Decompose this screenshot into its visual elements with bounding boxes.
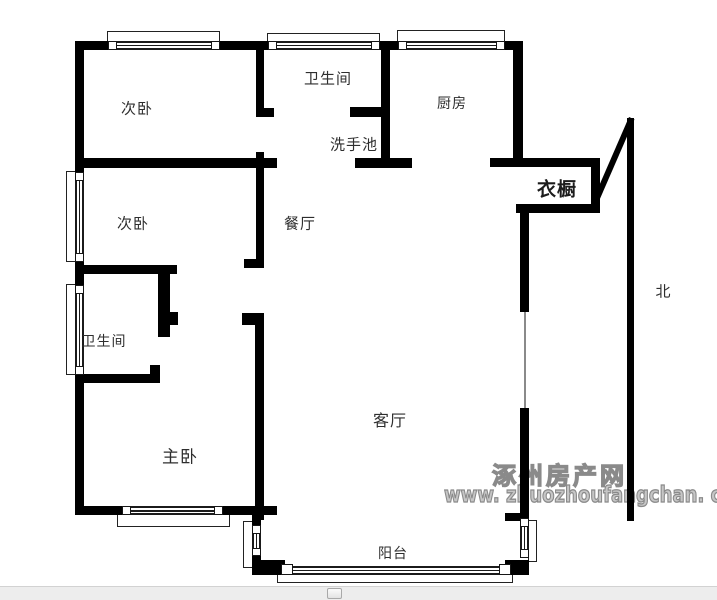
window-glass-line <box>79 181 81 253</box>
window-end-marker <box>108 41 117 50</box>
door-opening-line <box>524 312 526 408</box>
window-end-marker <box>520 518 529 527</box>
window-glass-line <box>277 48 371 50</box>
room-label-bathroom-2: 卫生间 <box>82 331 127 351</box>
window-glass-line <box>524 527 526 549</box>
bottom-scrollbar[interactable] <box>0 586 717 600</box>
room-label-bedroom-2: 次卧 <box>117 213 149 234</box>
window-frame <box>277 574 513 583</box>
window-end-marker <box>520 549 529 558</box>
wall <box>505 513 520 521</box>
window-glass-line <box>82 181 84 253</box>
window-end-marker <box>75 172 84 181</box>
window-glass-line <box>82 294 84 366</box>
window-frame <box>117 514 230 527</box>
window-glass-line <box>252 534 254 548</box>
window-glass-line <box>285 566 505 568</box>
room-label-bathroom-1: 卫生间 <box>304 68 352 89</box>
window-end-marker <box>496 41 505 50</box>
wall <box>75 265 177 274</box>
window-glass-line <box>259 534 261 548</box>
window-glass-line <box>285 570 505 572</box>
window-end-marker <box>398 41 407 50</box>
wall <box>255 313 264 520</box>
wall <box>355 158 412 168</box>
room-label-master-bedroom: 主卧 <box>162 443 198 468</box>
wall <box>150 365 160 374</box>
window-glass-line <box>79 294 81 366</box>
window-glass-line <box>256 534 258 548</box>
room-label-wardrobe: 衣橱 <box>537 175 577 202</box>
window-end-marker <box>281 564 293 575</box>
window-glass-line <box>131 506 214 508</box>
watermark-site-url: www. zhuozhoufangchan. com <box>444 483 717 508</box>
window-end-marker <box>499 564 511 575</box>
window-end-marker <box>252 525 261 534</box>
wall <box>256 41 264 117</box>
window-glass-line <box>277 45 371 47</box>
wall <box>520 408 529 523</box>
room-label-kitchen: 厨房 <box>437 93 467 113</box>
window-end-marker <box>252 548 261 556</box>
window-glass-line <box>131 510 214 512</box>
wall <box>490 158 600 167</box>
window-end-marker <box>371 41 380 50</box>
wall <box>75 41 84 172</box>
wall <box>256 108 274 117</box>
wall <box>158 274 170 337</box>
window-glass-line <box>117 45 211 47</box>
wall <box>75 158 277 168</box>
wall <box>381 41 390 168</box>
window-glass-line <box>407 45 496 47</box>
window-frame <box>528 520 537 562</box>
window-end-marker <box>122 506 131 515</box>
wall <box>513 41 523 163</box>
scrollbar-handle[interactable] <box>327 588 342 599</box>
window-end-marker <box>268 41 277 50</box>
wall <box>75 506 122 515</box>
room-label-washbasin: 洗手池 <box>330 134 378 155</box>
window-end-marker <box>75 253 84 262</box>
wall <box>350 107 381 117</box>
north-label: 北 <box>655 281 670 302</box>
window-end-marker <box>214 506 223 515</box>
north-arrow-line <box>627 118 634 521</box>
room-label-bedroom-1: 次卧 <box>121 98 153 119</box>
wall <box>223 506 277 515</box>
window-glass-line <box>407 41 496 43</box>
window-end-marker <box>75 366 84 375</box>
wall <box>520 210 529 312</box>
window-glass-line <box>285 573 505 575</box>
room-label-dining-room: 餐厅 <box>284 213 316 234</box>
wall <box>75 375 84 515</box>
window-glass-line <box>407 48 496 50</box>
window-glass-line <box>277 41 371 43</box>
window-end-marker <box>75 285 84 294</box>
room-label-living-room: 客厅 <box>373 407 407 431</box>
window-glass-line <box>520 527 522 549</box>
window-glass-line <box>117 48 211 50</box>
window-glass-line <box>117 41 211 43</box>
window-glass-line <box>527 527 529 549</box>
wall <box>170 312 178 325</box>
wall <box>75 374 160 383</box>
window-glass-line <box>75 181 77 253</box>
window-glass-line <box>75 294 77 366</box>
floor-plan: 涿州房产网 www. zhuozhoufangchan. com 次卧卫生间厨房… <box>0 0 717 600</box>
window-end-marker <box>211 41 220 50</box>
wall <box>256 152 264 268</box>
window-glass-line <box>131 513 214 515</box>
room-label-balcony: 阳台 <box>378 543 408 563</box>
wall <box>244 259 264 268</box>
